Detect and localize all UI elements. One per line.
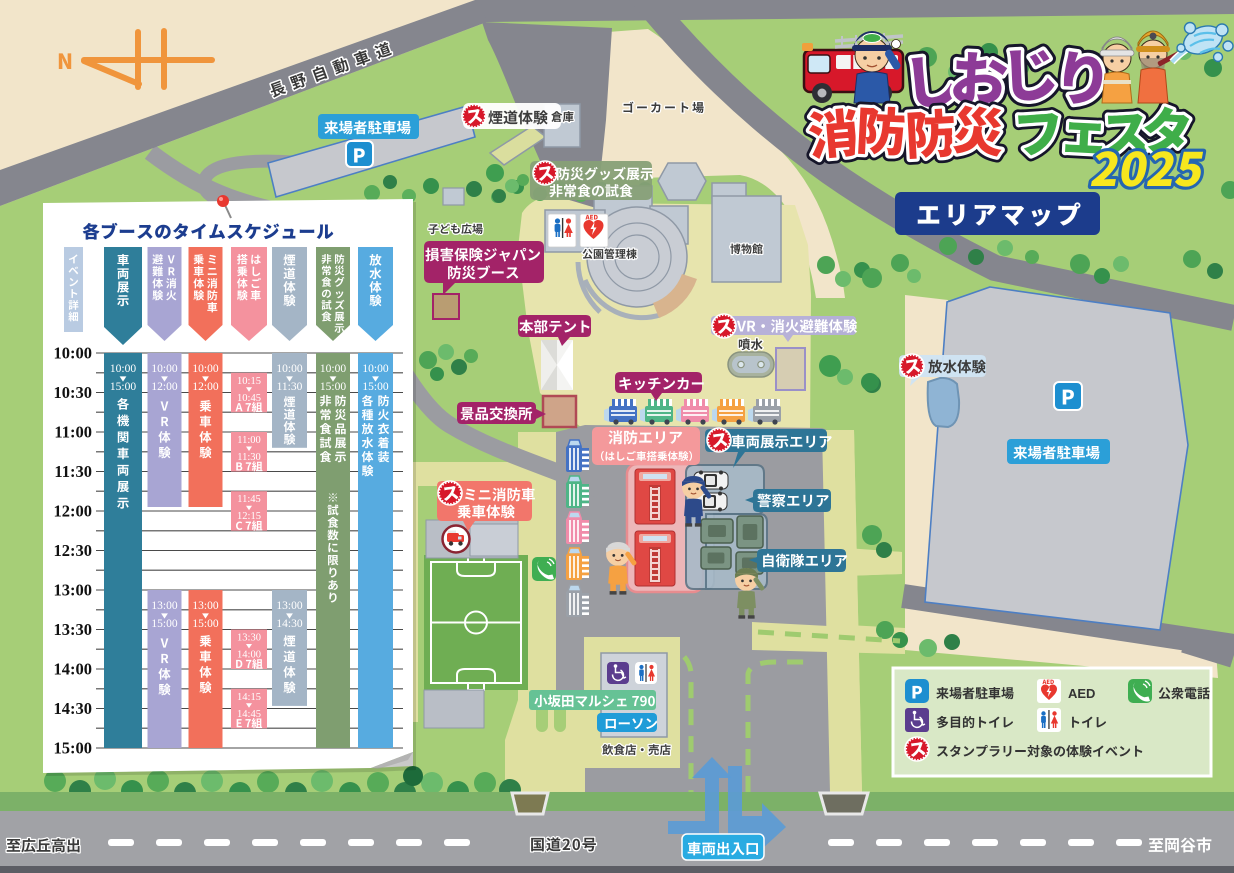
svg-text:13:30: 13:30: [237, 633, 261, 644]
svg-text:12:00: 12:00: [151, 381, 177, 393]
svg-text:12:30: 12:30: [54, 541, 93, 560]
svg-text:AED: AED: [1068, 686, 1095, 701]
svg-text:10:15: 10:15: [237, 376, 261, 387]
svg-text:10:00: 10:00: [276, 363, 302, 375]
svg-text:10:45: 10:45: [237, 393, 261, 404]
svg-text:15:00: 15:00: [362, 381, 388, 393]
svg-text:11:00: 11:00: [237, 435, 261, 446]
svg-text:14:30: 14:30: [276, 618, 302, 630]
svg-text:11:30: 11:30: [277, 381, 303, 393]
svg-text:13:30: 13:30: [54, 620, 93, 639]
svg-text:15:00: 15:00: [192, 618, 218, 630]
svg-text:15:00: 15:00: [151, 618, 177, 630]
svg-text:13:00: 13:00: [151, 600, 177, 612]
svg-text:14:00: 14:00: [237, 650, 261, 661]
svg-text:12:00: 12:00: [192, 381, 218, 393]
svg-text:14:30: 14:30: [54, 699, 93, 718]
svg-text:15:00: 15:00: [54, 739, 93, 758]
svg-text:15:00: 15:00: [320, 381, 346, 393]
svg-text:15:00: 15:00: [110, 381, 136, 393]
svg-text:10:00: 10:00: [362, 363, 388, 375]
svg-text:14:45: 14:45: [237, 709, 261, 720]
svg-text:12:00: 12:00: [54, 502, 93, 521]
svg-text:10:00: 10:00: [54, 344, 93, 363]
svg-text:11:30: 11:30: [54, 462, 92, 481]
svg-text:11:00: 11:00: [54, 423, 92, 442]
svg-text:10:30: 10:30: [54, 383, 93, 402]
svg-text:14:00: 14:00: [54, 660, 93, 679]
svg-text:10:00: 10:00: [151, 363, 177, 375]
svg-text:13:00: 13:00: [192, 600, 218, 612]
svg-text:11:30: 11:30: [237, 452, 261, 463]
svg-text:10:00: 10:00: [192, 363, 218, 375]
svg-text:11:45: 11:45: [237, 494, 261, 505]
svg-text:10:00: 10:00: [320, 363, 346, 375]
svg-text:10:00: 10:00: [110, 363, 136, 375]
svg-text:12:15: 12:15: [237, 511, 261, 522]
svg-text:14:15: 14:15: [237, 692, 261, 703]
svg-text:13:00: 13:00: [276, 600, 302, 612]
svg-text:13:00: 13:00: [54, 581, 93, 600]
